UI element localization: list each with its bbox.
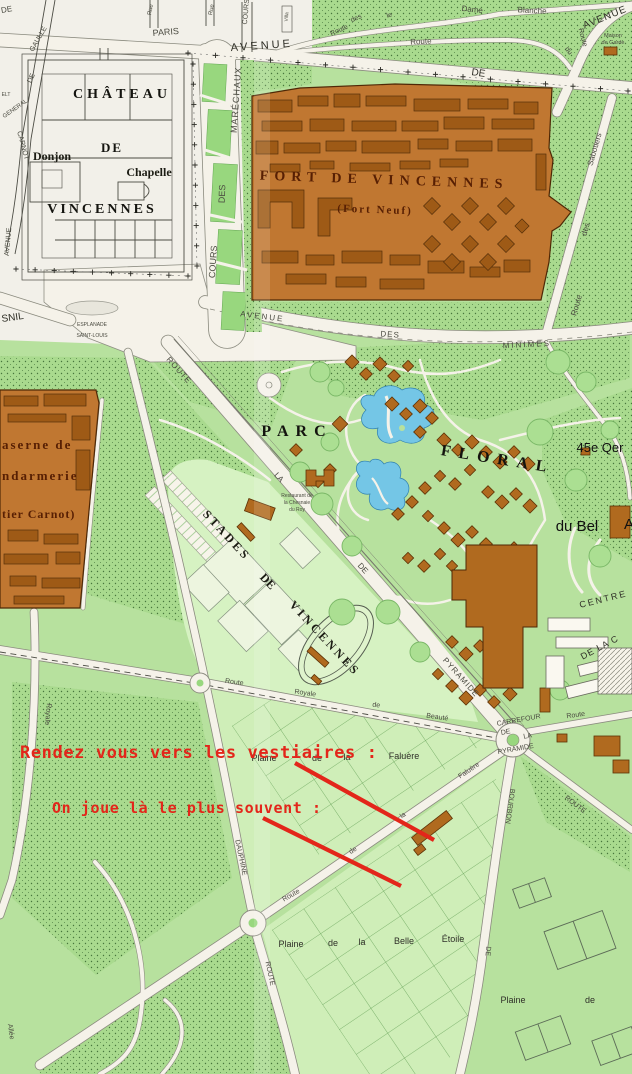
map-label-saint-louis-38: SAINT-LOUIS — [76, 333, 108, 339]
map-label-de-23: DE — [101, 140, 123, 155]
annotation-text-rendezvous: Rendez vous vers les vestiaires : — [20, 743, 378, 763]
map-label-chapelle-26: Chapelle — [126, 165, 172, 179]
annotation-text-onjoue: On joue là le plus souvent : — [52, 799, 322, 817]
map-label-du-bel-50: du Bel — [556, 518, 599, 535]
map-label-toile-91: Étoile — [442, 934, 465, 944]
map-label-de-88: de — [328, 938, 338, 948]
maison-de-garde-building — [604, 47, 617, 55]
map-label-de-77: DE — [483, 946, 491, 957]
map-label-parc-47: PARC — [261, 423, 332, 440]
map-label-maison-17: Maison — [604, 33, 622, 39]
map-label-ndarmerie-42: ndarmerie — [2, 468, 78, 483]
map-label-des-45: DES — [380, 329, 400, 339]
map-label-falu-re-86: Faluère — [389, 751, 420, 761]
map-label-des-28: DES — [217, 184, 228, 203]
map-label-de-66: de — [372, 702, 381, 710]
map-label-blanche-11: Blanche — [517, 5, 547, 16]
map-fold-highlight — [254, 0, 270, 1074]
map-label-de-garde-18: de Garde — [602, 40, 625, 46]
map-label-route-12: Route — [410, 36, 432, 46]
map-label-de-0: DE — [0, 4, 13, 15]
map-label-villa-6: Villa — [284, 12, 291, 22]
map-label-donjon-25: Donjon — [33, 149, 71, 163]
map-image: DEPARISAVENUERueRueCOURSVillaRoutedesleD… — [0, 0, 632, 1074]
fort-de-vincennes — [252, 84, 571, 300]
map-label-vincennes-24: VINCENNES — [47, 202, 156, 217]
map-label-plaine-93: Plaine — [500, 995, 525, 1005]
map-label-45e-qer-49: 45e Qer — [577, 440, 625, 455]
map-label-restaurant-de-52: Restaurant de — [281, 493, 313, 499]
map-label-tier-carnot-43: tier Carnot) — [2, 507, 75, 521]
map-label-la-chesnaie-53: la Chesnaie — [284, 500, 311, 506]
map-label-a-51: A — [624, 516, 632, 533]
map-label-du-roy-54: du Roy — [289, 507, 305, 513]
map-label-la-89: la — [358, 937, 365, 947]
map-label-esplanade-37: ESPLANADE — [77, 322, 108, 328]
map-label-plaine-87: Plaine — [278, 939, 303, 949]
map-label-aserne-de-41: aserne de — [2, 437, 72, 452]
map-label-elt-33: ELT — [2, 92, 11, 98]
vincennes-map: DEPARISAVENUERueRueCOURSVillaRoutedesleD… — [0, 0, 632, 1074]
map-label-de-94: de — [585, 995, 595, 1005]
map-label-ch-teau-22: CHÂTEAU — [73, 85, 171, 102]
map-label-belle-90: Belle — [394, 936, 414, 946]
map-label-de-13: DE — [471, 67, 487, 80]
